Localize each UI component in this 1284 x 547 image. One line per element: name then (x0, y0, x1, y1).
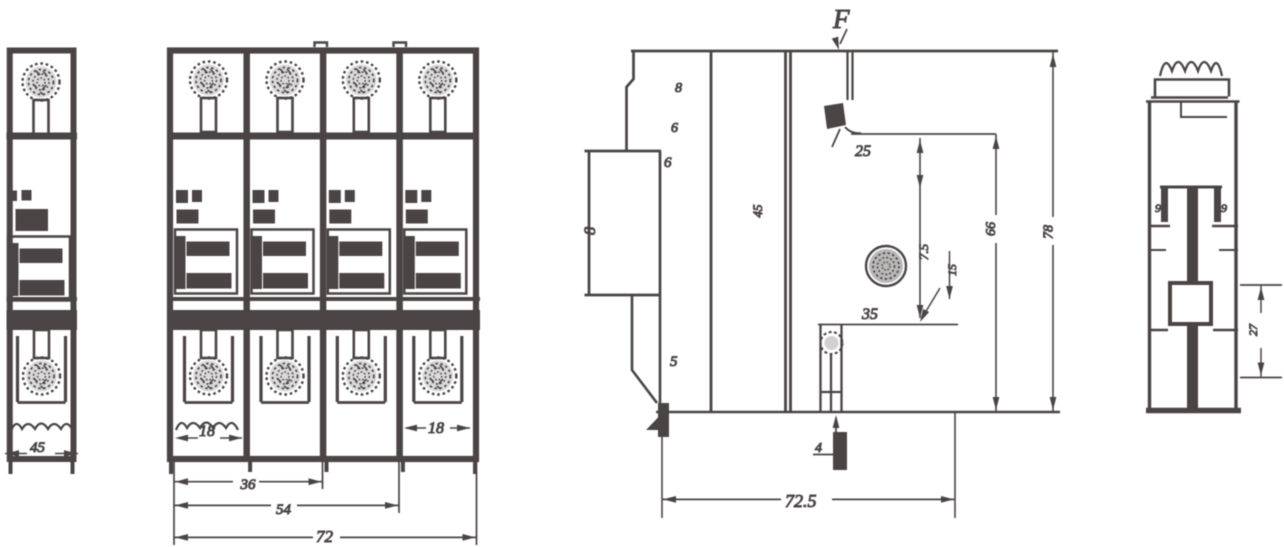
svg-text:27: 27 (1246, 323, 1260, 336)
svg-text:4: 4 (815, 441, 822, 456)
svg-text:18: 18 (428, 420, 444, 437)
svg-text:9: 9 (1221, 201, 1227, 215)
svg-text:78: 78 (1042, 225, 1057, 239)
svg-text:9: 9 (1155, 201, 1161, 215)
svg-text:8: 8 (582, 227, 599, 235)
svg-text:7.5: 7.5 (916, 243, 931, 260)
svg-text:6: 6 (664, 155, 672, 171)
svg-text:25: 25 (855, 143, 871, 160)
svg-text:35: 35 (861, 306, 878, 323)
svg-text:5: 5 (670, 354, 678, 370)
svg-text:8: 8 (675, 81, 682, 96)
svg-text:36: 36 (240, 477, 257, 493)
svg-text:72: 72 (316, 527, 334, 546)
svg-text:18: 18 (199, 423, 215, 440)
svg-text:66: 66 (984, 222, 999, 236)
svg-text:6: 6 (671, 121, 678, 136)
svg-text:45: 45 (750, 204, 765, 218)
svg-text:15: 15 (945, 264, 959, 276)
svg-text:72.5: 72.5 (785, 491, 817, 511)
svg-text:45: 45 (30, 440, 46, 456)
svg-text:54: 54 (276, 502, 292, 518)
